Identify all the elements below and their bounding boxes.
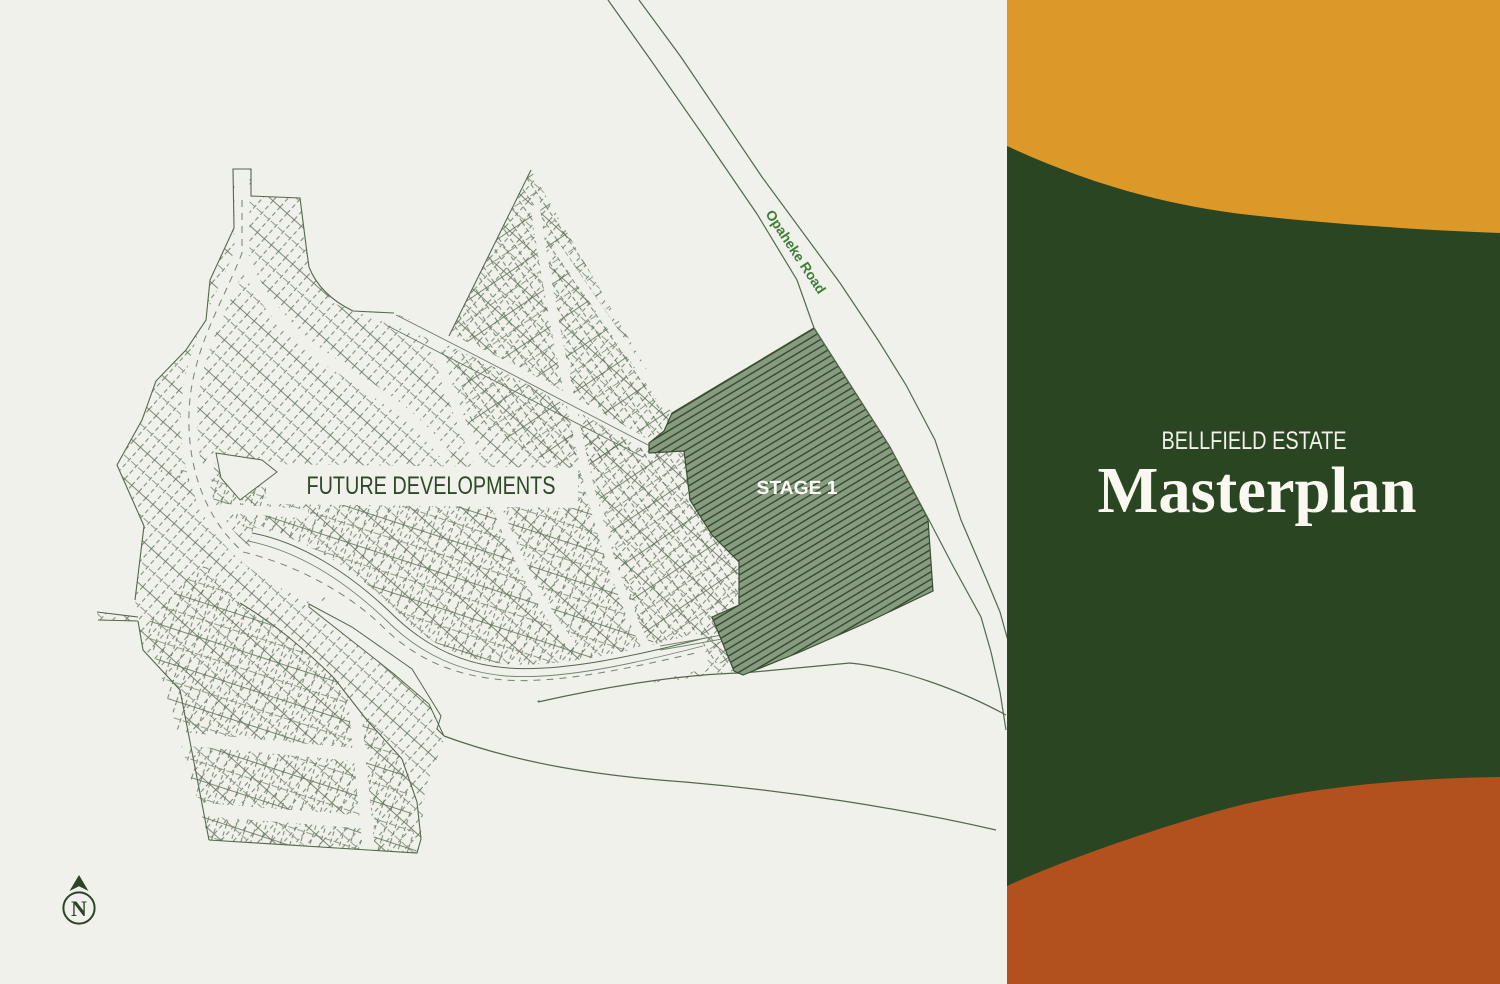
- svg-text:FUTURE DEVELOPMENTS: FUTURE DEVELOPMENTS: [307, 472, 556, 500]
- svg-text:Masterplan: Masterplan: [1098, 454, 1417, 527]
- svg-text:N: N: [71, 896, 87, 921]
- svg-text:BELLFIELD ESTATE: BELLFIELD ESTATE: [1162, 427, 1347, 455]
- svg-text:STAGE 1: STAGE 1: [756, 478, 837, 499]
